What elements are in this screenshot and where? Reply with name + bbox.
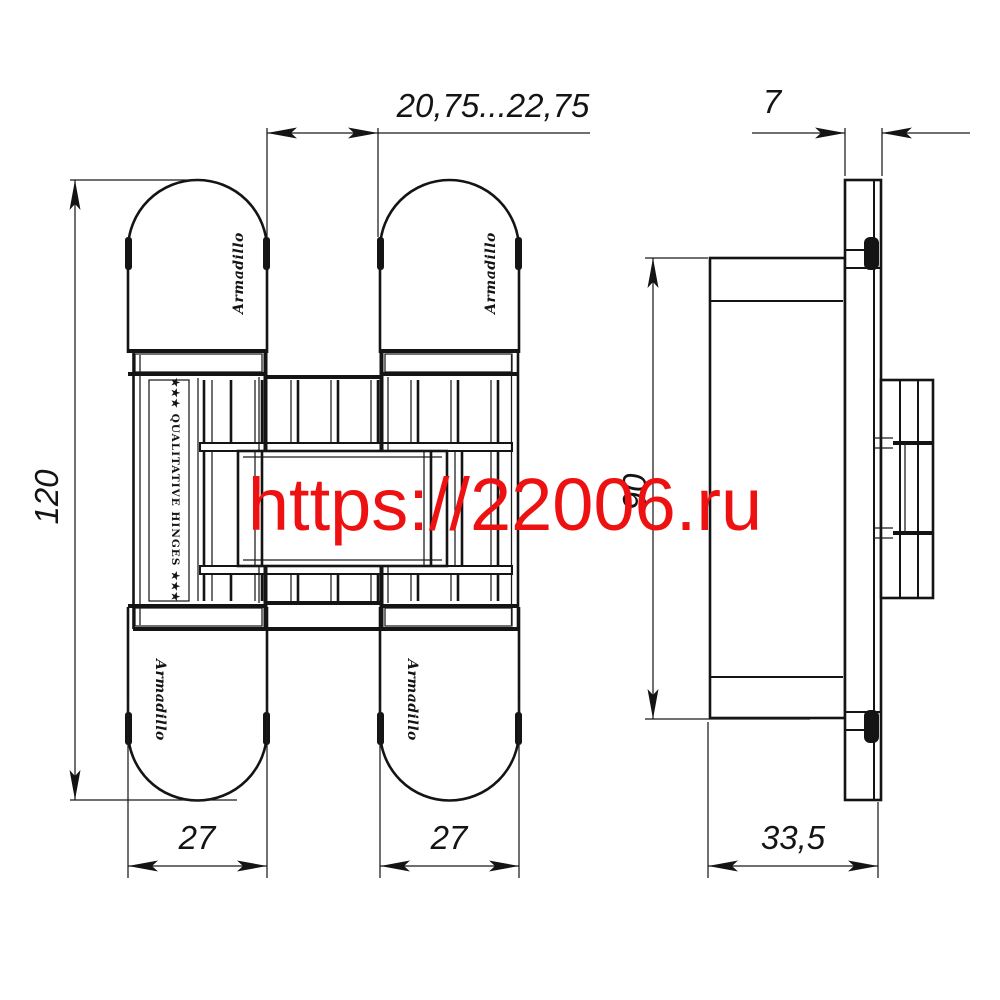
leaf-clip xyxy=(125,237,132,270)
linkage-lower xyxy=(204,574,498,601)
watermark-link: https://22006.ru xyxy=(248,463,762,546)
leaf-clip xyxy=(515,237,522,270)
dimension-thickness-value: 7 xyxy=(763,83,783,120)
face-plate xyxy=(845,180,881,800)
quality-strip-text: ★★★ QUALITATIVE HINGES ★★★ xyxy=(169,378,181,603)
leaf-clip xyxy=(263,237,270,270)
brand-logo-text: Armadillo xyxy=(152,657,168,741)
leaf-top-left: Armadillo xyxy=(125,180,270,353)
dimension-gap-value: 20,75...22,75 xyxy=(396,87,590,124)
dimension-leaf-width-right-value: 27 xyxy=(430,819,469,856)
knuckle-block xyxy=(874,380,933,598)
dimension-thickness: 7 xyxy=(752,83,970,176)
dimension-case-depth-value: 33,5 xyxy=(761,819,826,856)
plate-clip xyxy=(864,237,879,270)
brand-logo-text: Armadillo xyxy=(483,232,499,316)
dimension-height-value: 120 xyxy=(28,469,65,525)
dimension-leaf-width-left-value: 27 xyxy=(178,819,217,856)
brand-logo-text: Armadillo xyxy=(231,232,247,316)
quality-strip: ★★★ QUALITATIVE HINGES ★★★ xyxy=(149,378,189,603)
leaf-bottom-right: Armadillo xyxy=(377,607,522,801)
brand-logo-text: Armadillo xyxy=(404,657,420,741)
hinge-technical-drawing: Armadillo Armadillo Armadillo Armadillo xyxy=(0,0,1000,1000)
leaf-clip xyxy=(377,237,384,270)
linkage-upper xyxy=(204,380,498,443)
plate-clip xyxy=(864,710,879,743)
leaf-bottom-left: Armadillo xyxy=(125,607,270,801)
leaf-top-right: Armadillo xyxy=(377,180,522,353)
drawing-canvas: Armadillo Armadillo Armadillo Armadillo xyxy=(0,0,1000,1000)
